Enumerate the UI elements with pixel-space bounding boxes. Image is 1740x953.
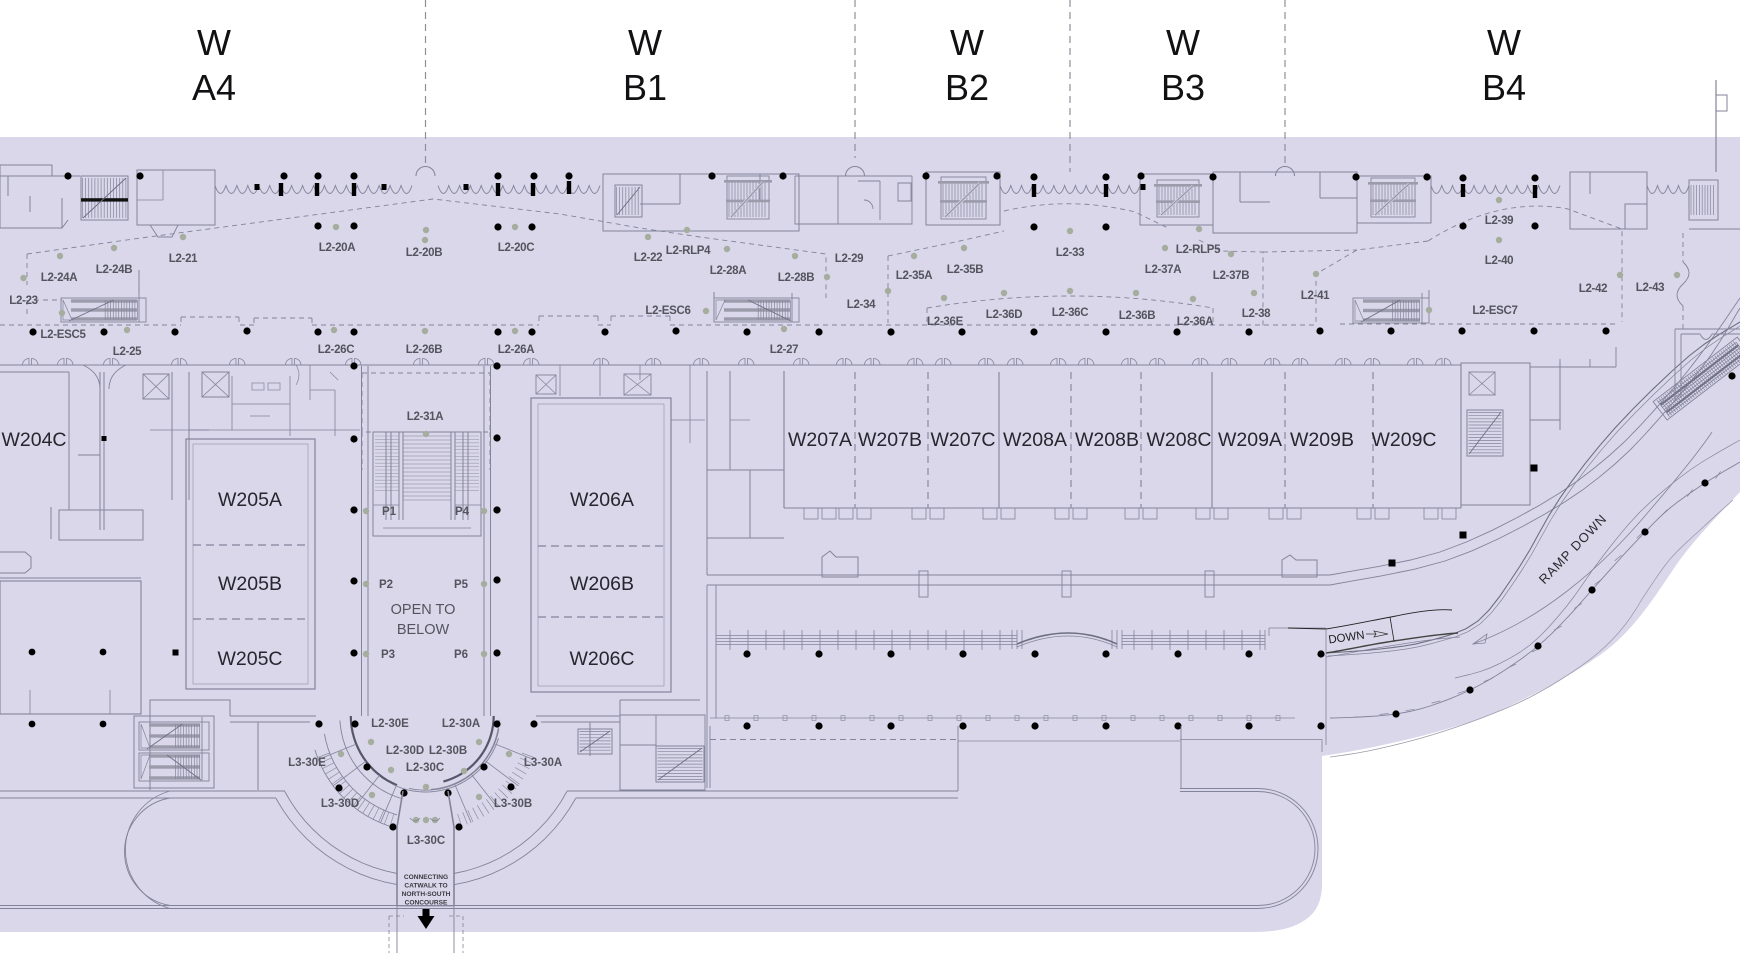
svg-text:L2-36B: L2-36B: [1119, 310, 1156, 322]
svg-text:W205B: W205B: [218, 573, 282, 595]
svg-text:B2: B2: [945, 67, 989, 108]
svg-text:L2-31A: L2-31A: [407, 411, 444, 423]
svg-text:L2-ESC5: L2-ESC5: [40, 329, 86, 341]
svg-text:B3: B3: [1161, 67, 1205, 108]
svg-text:L2-24A: L2-24A: [41, 272, 78, 284]
svg-text:L2-41: L2-41: [1301, 290, 1330, 302]
svg-text:L3-30C: L3-30C: [407, 835, 445, 847]
svg-text:L2-30B: L2-30B: [429, 745, 467, 757]
svg-text:L2-23: L2-23: [9, 295, 38, 307]
svg-text:W207C: W207C: [930, 429, 995, 451]
svg-text:L2-30E: L2-30E: [371, 718, 409, 730]
svg-text:L2-37B: L2-37B: [1213, 270, 1250, 282]
svg-text:W205C: W205C: [217, 648, 282, 670]
svg-text:L2-26C: L2-26C: [318, 344, 355, 356]
svg-text:L2-26B: L2-26B: [406, 344, 443, 356]
svg-text:W207A: W207A: [788, 429, 852, 451]
svg-text:W205A: W205A: [218, 489, 282, 511]
svg-text:CATWALK TO: CATWALK TO: [404, 883, 447, 890]
svg-text:L2-33: L2-33: [1056, 247, 1085, 259]
svg-text:L2-20B: L2-20B: [406, 247, 443, 259]
svg-text:W209C: W209C: [1371, 429, 1436, 451]
svg-text:L2-22: L2-22: [634, 252, 663, 264]
svg-text:P6: P6: [454, 649, 468, 661]
svg-text:L2-37A: L2-37A: [1145, 264, 1182, 276]
svg-text:L2-35B: L2-35B: [947, 264, 984, 276]
svg-text:L2-35A: L2-35A: [896, 270, 933, 282]
svg-text:L3-30B: L3-30B: [494, 798, 532, 810]
svg-text:L3-30A: L3-30A: [524, 757, 562, 769]
svg-text:W208C: W208C: [1146, 429, 1211, 451]
svg-text:W206A: W206A: [570, 489, 634, 511]
svg-text:L2-RLP5: L2-RLP5: [1176, 244, 1221, 256]
svg-text:BELOW: BELOW: [397, 622, 450, 638]
svg-text:L2-RLP4: L2-RLP4: [666, 245, 711, 257]
svg-text:L2-30D: L2-30D: [386, 745, 424, 757]
svg-text:L2-28A: L2-28A: [710, 265, 747, 277]
svg-text:L2-20A: L2-20A: [319, 242, 356, 254]
svg-text:L2-20C: L2-20C: [498, 242, 535, 254]
svg-text:W209B: W209B: [1290, 429, 1354, 451]
svg-text:L2-ESC6: L2-ESC6: [645, 305, 690, 317]
svg-text:W: W: [628, 22, 662, 63]
svg-text:P1: P1: [382, 506, 397, 518]
svg-text:P2: P2: [379, 579, 393, 591]
svg-text:L2-43: L2-43: [1636, 282, 1665, 294]
svg-text:L2-36D: L2-36D: [986, 309, 1023, 321]
svg-text:L2-26A: L2-26A: [498, 344, 535, 356]
svg-text:W208B: W208B: [1075, 429, 1139, 451]
svg-text:L2-36C: L2-36C: [1052, 307, 1089, 319]
svg-text:L2-27: L2-27: [770, 344, 799, 356]
svg-text:B4: B4: [1482, 67, 1526, 108]
svg-text:W: W: [197, 22, 231, 63]
svg-text:L3-30E: L3-30E: [288, 757, 326, 769]
svg-text:L2-36A: L2-36A: [1177, 316, 1214, 328]
svg-text:L2-24B: L2-24B: [96, 264, 133, 276]
svg-text:W208A: W208A: [1003, 429, 1067, 451]
svg-text:NORTH-SOUTH: NORTH-SOUTH: [402, 891, 451, 898]
svg-text:CONNECTING: CONNECTING: [404, 874, 448, 881]
svg-text:P4: P4: [455, 506, 470, 518]
svg-text:W: W: [950, 22, 984, 63]
svg-text:W: W: [1487, 22, 1521, 63]
svg-text:W206B: W206B: [570, 573, 634, 595]
svg-text:L2-30A: L2-30A: [442, 718, 480, 730]
svg-text:L2-25: L2-25: [113, 346, 142, 358]
svg-text:L2-28B: L2-28B: [778, 272, 815, 284]
svg-text:L2-30C: L2-30C: [406, 762, 444, 774]
svg-text:L2-ESC7: L2-ESC7: [1472, 305, 1517, 317]
svg-text:W206C: W206C: [569, 648, 634, 670]
svg-text:P3: P3: [381, 649, 395, 661]
svg-text:A4: A4: [192, 67, 236, 108]
svg-text:P5: P5: [454, 579, 469, 591]
svg-text:L2-21: L2-21: [169, 253, 198, 265]
svg-text:L2-42: L2-42: [1579, 283, 1608, 295]
svg-text:L3-30D: L3-30D: [321, 798, 359, 810]
svg-text:L2-34: L2-34: [847, 299, 876, 311]
svg-text:L2-38: L2-38: [1242, 308, 1271, 320]
svg-text:L2-29: L2-29: [835, 253, 864, 265]
svg-text:L2-40: L2-40: [1485, 255, 1514, 267]
svg-text:L2-36E: L2-36E: [927, 316, 964, 328]
svg-text:W204C: W204C: [1, 429, 66, 451]
svg-text:W207B: W207B: [858, 429, 922, 451]
svg-text:B1: B1: [623, 67, 667, 108]
svg-text:OPEN TO: OPEN TO: [391, 602, 456, 618]
svg-text:W209A: W209A: [1218, 429, 1282, 451]
svg-text:W: W: [1166, 22, 1200, 63]
svg-text:L2-39: L2-39: [1485, 215, 1514, 227]
